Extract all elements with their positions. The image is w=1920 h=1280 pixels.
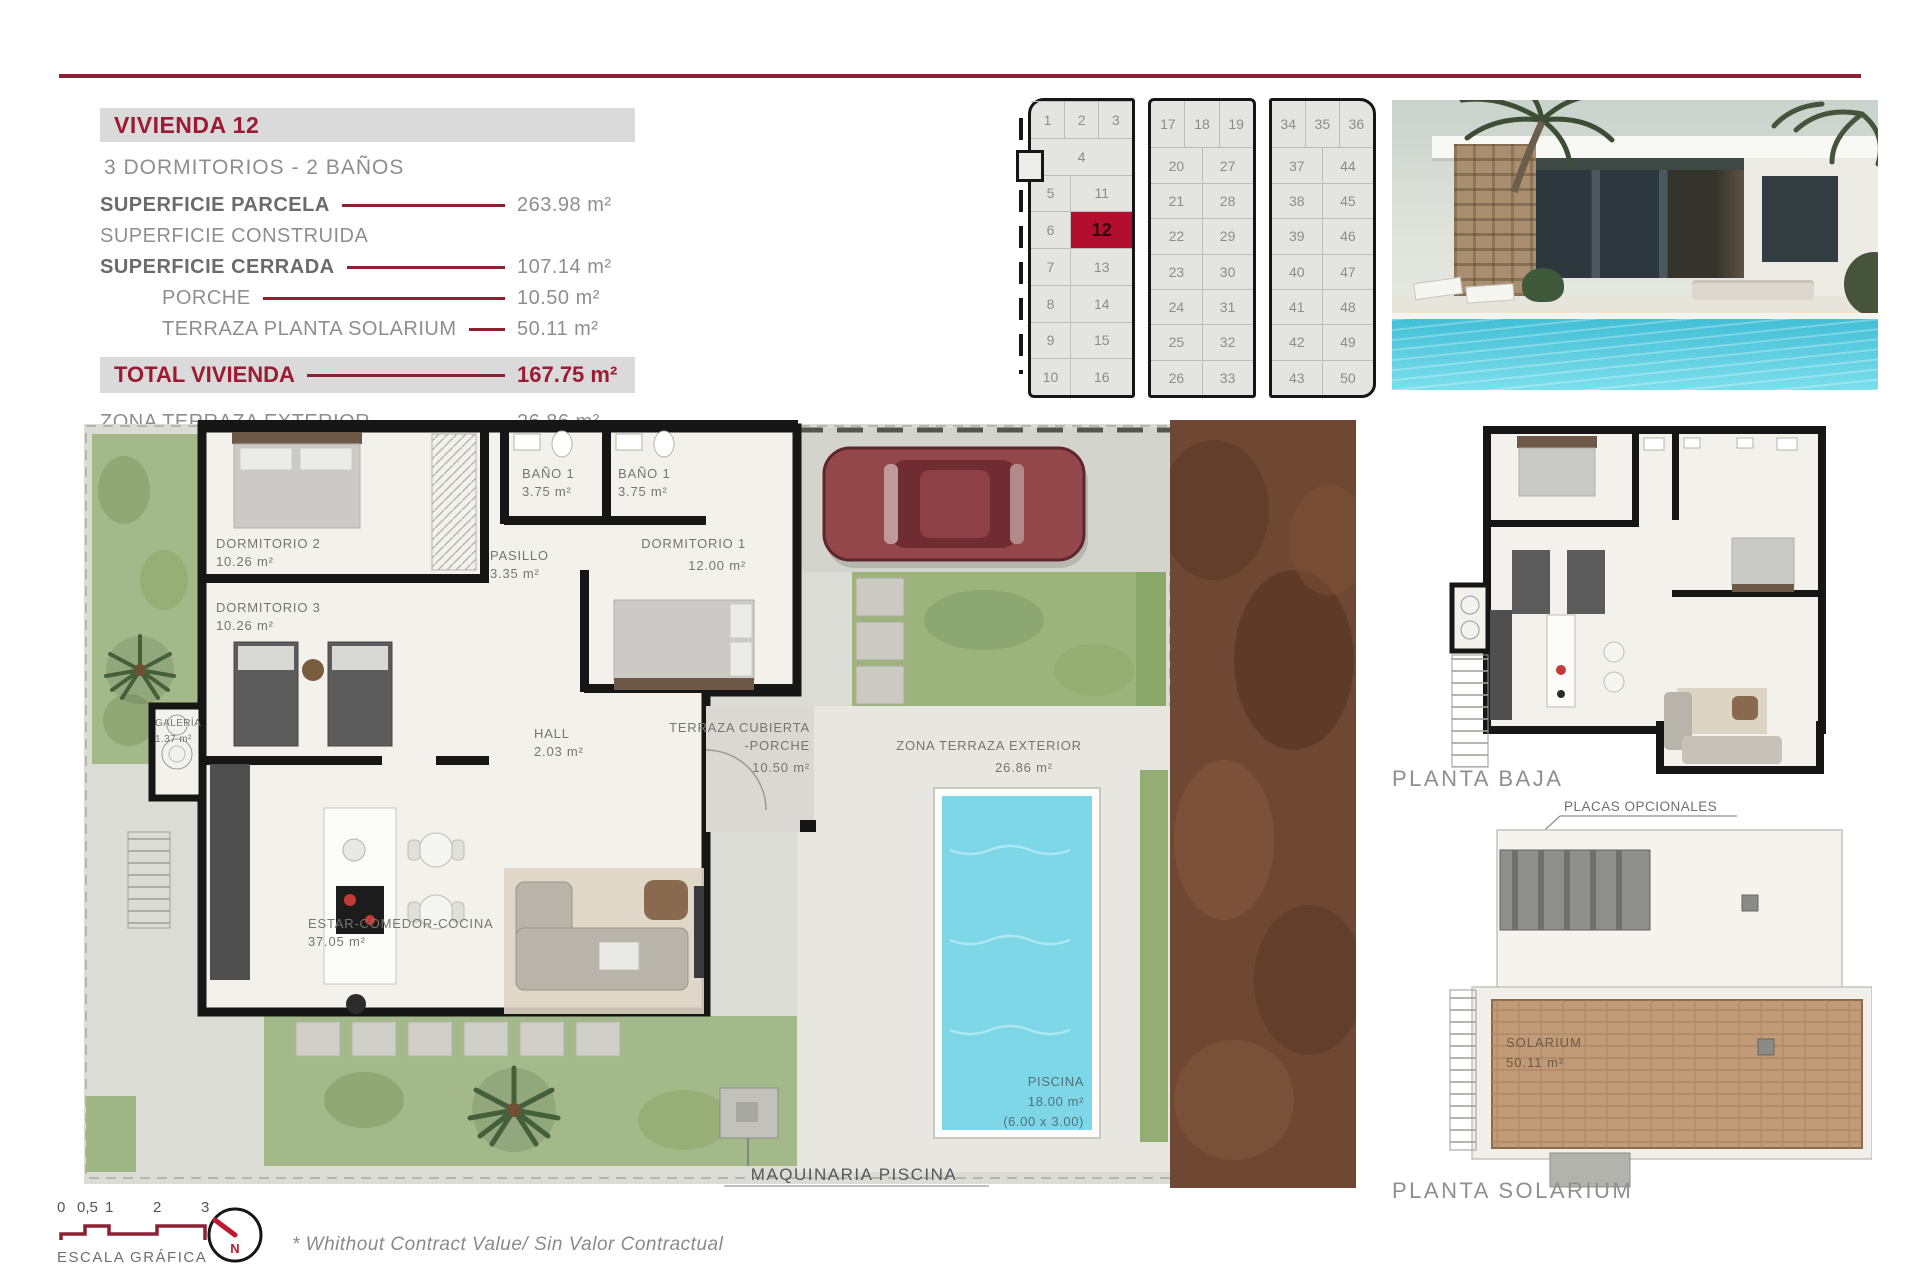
site-plan-key: 1 2 3 4 5 11 6 12 7 13 8 14	[1028, 98, 1376, 398]
plot-cell: 7	[1031, 249, 1070, 285]
scale-label: ESCALA GRÁFICA	[57, 1249, 207, 1266]
room-area: 26.86 m²	[995, 760, 1053, 775]
unit-title-band: VIVIENDA 12	[100, 108, 635, 142]
room-area: 50.11 m²	[1506, 1055, 1564, 1070]
unit-info-panel: VIVIENDA 12 3 DORMITORIOS - 2 BAÑOS SUPE…	[100, 108, 635, 438]
room-label: DORMITORIO 3	[216, 600, 321, 615]
plot-cell: 11	[1070, 176, 1132, 212]
plot-cell: 29	[1202, 219, 1253, 253]
plot-cell: 30	[1202, 255, 1253, 289]
unit-subtitle: 3 DORMITORIOS - 2 BAÑOS	[104, 156, 635, 180]
plot-cell: 17	[1151, 101, 1184, 147]
compass: N	[205, 1205, 265, 1265]
photo-palms	[1392, 100, 1878, 390]
site-block-a: 1 2 3 4 5 11 6 12 7 13 8 14	[1028, 98, 1135, 398]
plot-cell: 2	[1064, 102, 1098, 138]
row-label: SUPERFICIE CONSTRUIDA	[100, 225, 368, 248]
compass-north-label: N	[230, 1241, 239, 1256]
room-label: TERRAZA CUBIERTA	[669, 720, 810, 735]
surface-row: SUPERFICIE CONSTRUIDA	[100, 221, 635, 252]
pool: PISCINA 18.00 m² (6.00 x 3.00)	[934, 788, 1100, 1138]
plot-cell: 16	[1070, 359, 1132, 395]
leader-line	[347, 266, 505, 269]
plot-cell: 44	[1322, 148, 1373, 182]
plot-cell: 36	[1339, 101, 1373, 147]
scale-tick: 0	[57, 1199, 65, 1216]
palm-tree	[106, 636, 174, 704]
room-area: 1.37 m²	[155, 734, 192, 745]
surface-row: TERRAZA PLANTA SOLARIUM 50.11 m²	[100, 314, 635, 345]
plot-cell: 15	[1070, 323, 1132, 359]
room-area: 10.26 m²	[216, 554, 274, 569]
stepping-stones	[856, 578, 904, 704]
plot-cell: 37	[1272, 148, 1322, 182]
scale-tick: 1	[105, 1199, 113, 1216]
plot-annex-square	[1016, 150, 1044, 182]
plot-cell: 14	[1070, 286, 1132, 322]
surface-row: SUPERFICIE PARCELA 263.98 m²	[100, 190, 635, 221]
site-block-c: 34 35 36 37 44 38 45 39 46 40 47 41	[1269, 98, 1376, 398]
room-label: ESTAR-COMEDOR-COCINA	[308, 916, 493, 931]
plot-cell: 49	[1322, 325, 1373, 359]
plot-cell: 24	[1151, 290, 1201, 324]
total-label: TOTAL VIVIENDA	[114, 362, 295, 388]
exterior-stairs	[128, 832, 170, 928]
leader-line	[307, 374, 505, 377]
plot-cell: 22	[1151, 219, 1201, 253]
leader-line	[469, 328, 505, 331]
room-label: BAÑO 1	[522, 466, 574, 481]
plot-cell: 23	[1151, 255, 1201, 289]
plot-cell: 28	[1202, 184, 1253, 218]
plot-cell: 39	[1272, 219, 1322, 253]
room-label: DORMITORIO 1	[641, 536, 746, 551]
plot-cell-highlighted: 12	[1070, 212, 1132, 248]
plot-cell: 10	[1031, 359, 1070, 395]
villa-photo	[1392, 100, 1878, 390]
exterior-terrace: PISCINA 18.00 m² (6.00 x 3.00)	[797, 706, 1170, 1172]
plot-cell: 38	[1272, 184, 1322, 218]
planta-solarium-plan: PLACAS OPCIONALES SOLARIUM 50.11 m²	[1442, 795, 1872, 1195]
row-value: 50.11 m²	[517, 318, 635, 341]
plot-cell: 3	[1098, 102, 1132, 138]
room-area: 10.50 m²	[752, 760, 810, 775]
plot-cell: 9	[1031, 323, 1070, 359]
plot-cell: 20	[1151, 148, 1201, 182]
row-label: TERRAZA PLANTA SOLARIUM	[162, 318, 457, 341]
plot-cell: 27	[1202, 148, 1253, 182]
row-value: 107.14 m²	[517, 256, 635, 279]
scale-tick: 2	[153, 1199, 161, 1216]
room-area: 12.00 m²	[688, 558, 746, 573]
leader-line	[342, 204, 505, 207]
placas-opcionales-label: PLACAS OPCIONALES	[1564, 799, 1717, 814]
plot-cell: 35	[1305, 101, 1339, 147]
plot-cell: 19	[1219, 101, 1253, 147]
roof-vent	[1742, 895, 1758, 911]
driveway	[797, 428, 1170, 572]
room-label: GALERÍA	[155, 716, 201, 729]
scale-bar	[61, 1226, 205, 1240]
room-area: 3.35 m²	[490, 566, 540, 581]
total-value: 167.75 m²	[517, 362, 635, 388]
plot-cell: 32	[1202, 325, 1253, 359]
plot-cell: 46	[1322, 219, 1373, 253]
hedge-strip	[1136, 572, 1166, 706]
plot-cell: 18	[1184, 101, 1218, 147]
surface-row: PORCHE 10.50 m²	[100, 283, 635, 314]
planta-baja-plan	[1432, 420, 1848, 776]
top-divider-rule	[59, 74, 1861, 78]
machinery-label: MAQUINARIA PISCINA	[751, 1165, 957, 1184]
room-area: 18.00 m²	[1028, 1094, 1084, 1109]
plot-cell: 25	[1151, 325, 1201, 359]
dirt-area	[1159, 420, 1356, 1188]
room-area: 3.75 m²	[522, 484, 572, 499]
plot-cell: 13	[1070, 249, 1132, 285]
garden-mid	[852, 572, 1152, 706]
room-label: DORMITORIO 2	[216, 536, 321, 551]
surface-row: SUPERFICIE CERRADA 107.14 m²	[100, 252, 635, 283]
row-label: SUPERFICIE CERRADA	[100, 256, 335, 279]
plot-cell: 26	[1151, 361, 1201, 395]
solarium-stairs	[1450, 990, 1476, 1150]
main-floor-plan: PISCINA 18.00 m² (6.00 x 3.00)	[84, 420, 1356, 1188]
plot-cell: 42	[1272, 325, 1322, 359]
room-label: BAÑO 1	[618, 466, 670, 481]
room-area: 2.03 m²	[534, 744, 584, 759]
brochure-page: VIVIENDA 12 3 DORMITORIOS - 2 BAÑOS SUPE…	[0, 0, 1920, 1280]
plot-cell: 47	[1322, 255, 1373, 289]
room-label: HALL	[534, 726, 570, 741]
site-block-b: 17 18 19 20 27 21 28 22 29 23 30 24	[1148, 98, 1255, 398]
pool-dimensions: (6.00 x 3.00)	[1003, 1114, 1084, 1129]
plot-cell: 8	[1031, 286, 1070, 322]
row-label: SUPERFICIE PARCELA	[100, 194, 330, 217]
solar-panels	[1500, 850, 1650, 930]
total-row: TOTAL VIVIENDA 167.75 m²	[100, 357, 635, 393]
room-area: 3.75 m²	[618, 484, 668, 499]
room-area: 37.05 m²	[308, 934, 366, 949]
plot-cell: 33	[1202, 361, 1253, 395]
plot-cell: 31	[1202, 290, 1253, 324]
row-value: 263.98 m²	[517, 194, 635, 217]
roof-vent	[1758, 1039, 1774, 1055]
plot-cell: 1	[1031, 102, 1064, 138]
unit-title: VIVIENDA 12	[114, 112, 259, 139]
leader-line	[263, 297, 505, 300]
room-label: PASILLO	[490, 548, 549, 563]
scale-tick: 0,5	[77, 1199, 98, 1216]
row-label: PORCHE	[162, 287, 251, 310]
plot-cell: 6	[1031, 212, 1070, 248]
plot-cell: 45	[1322, 184, 1373, 218]
room-area: 10.26 m²	[216, 618, 274, 633]
plot-cell: 41	[1272, 290, 1322, 324]
room-label: PISCINA	[1028, 1074, 1084, 1089]
plot-cell: 50	[1322, 361, 1373, 395]
car	[824, 448, 1088, 568]
planta-solarium-label: PLANTA SOLARIUM	[1392, 1178, 1633, 1204]
plot-cell: 4	[1031, 139, 1132, 175]
plot-cell: 21	[1151, 184, 1201, 218]
disclaimer-text: * Whithout Contract Value/ Sin Valor Con…	[292, 1234, 723, 1256]
graphic-scale: 0 0,5 1 2 3 ESCALA GRÁFICA	[55, 1198, 535, 1268]
room-label: SOLARIUM	[1506, 1035, 1582, 1050]
plot-cell: 48	[1322, 290, 1373, 324]
row-value: 10.50 m²	[517, 287, 635, 310]
plot-cell: 43	[1272, 361, 1322, 395]
room-label: -PORCHE	[744, 738, 810, 753]
planta-baja-label: PLANTA BAJA	[1392, 766, 1563, 792]
room-label: ZONA TERRAZA EXTERIOR	[896, 738, 1082, 753]
plot-cell: 40	[1272, 255, 1322, 289]
plot-cell: 34	[1272, 101, 1305, 147]
